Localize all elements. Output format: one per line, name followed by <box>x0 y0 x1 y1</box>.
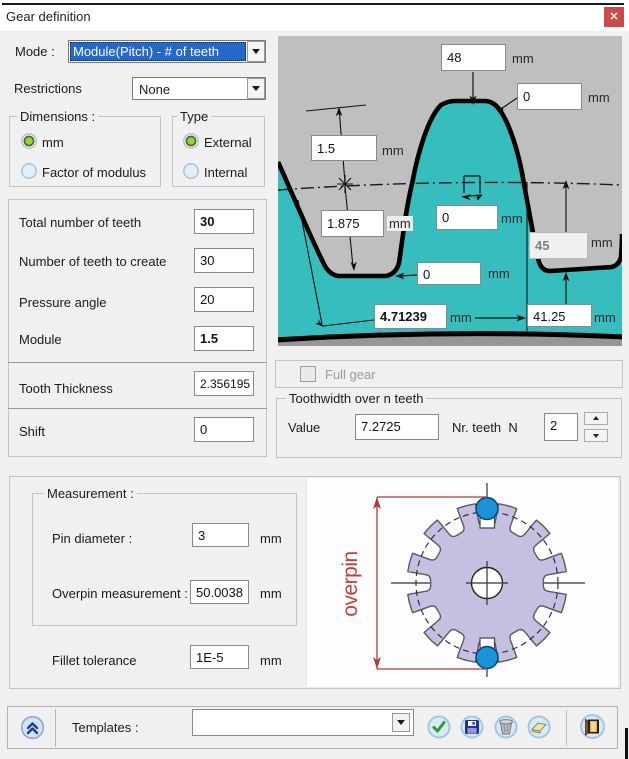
svg-text:overpin: overpin <box>339 551 362 616</box>
